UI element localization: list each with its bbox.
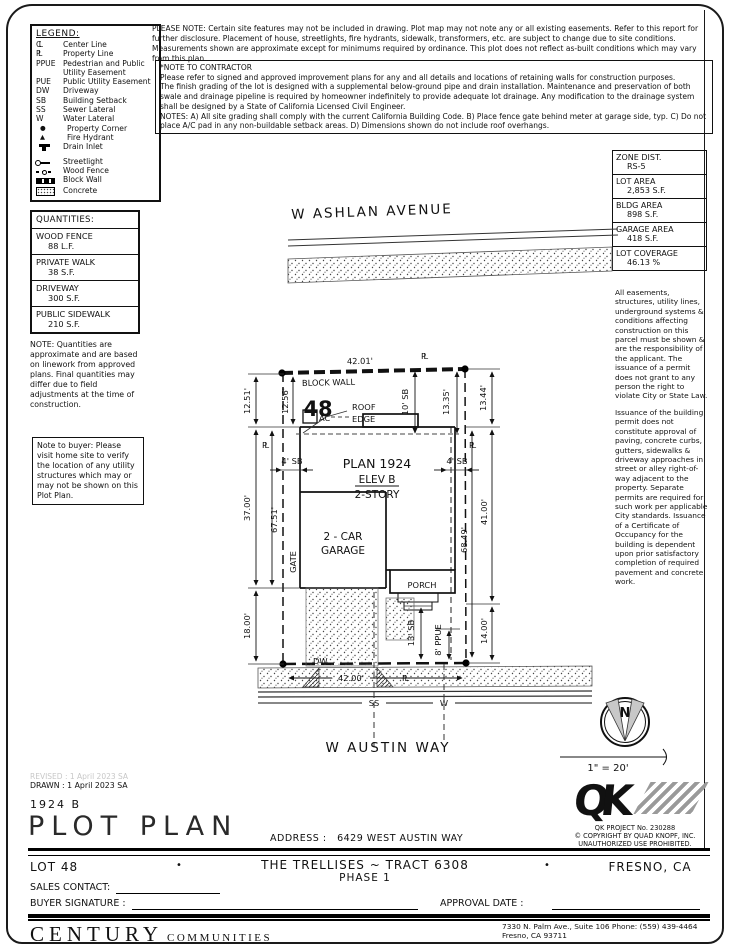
ac-label: AC xyxy=(319,413,331,423)
lot-label: LOT 48 xyxy=(30,860,78,874)
revised-line: REVISED : 1 April 2023 SA xyxy=(30,772,128,781)
elev-label: ELEV B xyxy=(359,474,396,486)
driveway-concrete xyxy=(306,588,414,666)
dim-left-outer: 12.51' xyxy=(242,388,252,414)
legend-item-drain-inlet: Drain Inlet xyxy=(36,142,155,156)
contractor-note-line: NOTES: A) All site grading shall comply … xyxy=(160,112,708,131)
dim-sb10: 10' SB xyxy=(400,388,410,415)
scale-bar: 1" = 20' xyxy=(560,749,667,774)
garage-label: GARAGE xyxy=(321,545,365,557)
block-wall-line xyxy=(282,369,465,373)
pl-label-left: PL xyxy=(262,440,270,450)
legend-item-pue: PUE Public Utility Easement xyxy=(36,77,155,86)
qk-logo-block: QK QK PROJECT No. 230288 © COPYRIGHT BY … xyxy=(556,780,714,849)
property-corner xyxy=(461,365,468,372)
water-lateral-label: W xyxy=(440,698,448,708)
gate-label: GATE xyxy=(288,551,298,573)
streetlight-icon xyxy=(36,162,50,164)
qk-copyright: © COPYRIGHT BY QUAD KNOPF, INC. xyxy=(556,832,714,840)
driveway-label: DW xyxy=(313,656,328,666)
legend-item-property-corner: ● Property Corner xyxy=(36,124,155,133)
note-to-contractor-box: *NOTE TO CONTRACTOR Please refer to sign… xyxy=(155,60,713,134)
plan-label: PLAN 1924 xyxy=(343,456,412,471)
approval-date-label: APPROVAL DATE : xyxy=(440,898,524,909)
dim-left-total: 67.51' xyxy=(269,507,279,533)
builder-logo: CENTURYCOMMUNITIES xyxy=(30,922,272,947)
quantity-row: DRIVEWAY 300 S.F. xyxy=(32,281,138,307)
legend-box: LEGEND: CL Center Line PL Property Line … xyxy=(30,24,161,202)
fire-hydrant-icon: ▲ xyxy=(36,133,67,142)
plot-drawing: W ASHLAN AVENUE xyxy=(238,195,716,787)
dim-sb4-left: 4' SB xyxy=(281,456,302,466)
contractor-note-line: Please refer to signed and approved impr… xyxy=(160,73,708,83)
dim-left-inner: 12.56' xyxy=(280,388,290,414)
approval-date-blank xyxy=(552,909,700,910)
legend-title: LEGEND: xyxy=(36,29,155,39)
buyer-signature-blank xyxy=(132,909,418,910)
qk-logo: QK xyxy=(556,780,714,824)
tract-name: THE TRELLISES ~ TRACT 6308 xyxy=(230,858,500,872)
property-corner xyxy=(278,369,285,376)
buyer-signature-label: BUYER SIGNATURE : xyxy=(30,898,126,909)
plot-plan-sheet: { "legend": { "title": "LEGEND:", "items… xyxy=(0,0,730,946)
legend-item-driveway: DW Driveway xyxy=(36,86,155,95)
page-title: PLOT PLAN xyxy=(28,811,238,842)
buyer-note-box: Note to buyer: Please visit home site to… xyxy=(32,437,144,505)
legend-item-sewer: SS Sewer Lateral xyxy=(36,105,155,114)
sales-contact-label: SALES CONTACT: xyxy=(30,882,110,893)
roof-edge-label: EDGE xyxy=(352,414,375,424)
centerline-symbol: CL xyxy=(36,40,63,49)
drawn-line: DRAWN : 1 April 2023 SA xyxy=(30,781,128,790)
garage-label: 2 - CAR xyxy=(324,531,363,543)
dim-right-low: 14.00' xyxy=(479,618,489,644)
dim-right-total: 68.49' xyxy=(459,527,469,553)
block-wall-label: BLOCK WALL xyxy=(302,377,356,388)
legend-item-fire-hydrant: ▲ Fire Hydrant xyxy=(36,133,155,142)
stat-row: ZONE DIST. RS-5 xyxy=(613,151,706,175)
please-note-text: PLEASE NOTE: Certain site features may n… xyxy=(152,24,712,64)
ashlan-avenue-street: W ASHLAN AVENUE xyxy=(288,201,618,283)
builder-name: CENTURY xyxy=(30,922,163,946)
dim-top: 42.01' xyxy=(347,356,373,367)
legend-item-block-wall: Block Wall xyxy=(36,175,155,186)
dim-sb4-right: 4' SB xyxy=(446,456,467,466)
legend-item-wood-fence: Wood Fence xyxy=(36,166,155,175)
address-label: ADDRESS : xyxy=(270,833,327,844)
dim-left-mid: 37.00' xyxy=(242,495,252,521)
address-line: ADDRESS : 6429 WEST AUSTIN WAY xyxy=(270,833,463,844)
concrete-icon xyxy=(36,187,55,196)
office-address: 7330 N. Palm Ave., Suite 106 Phone: (559… xyxy=(502,922,706,940)
dim-right-outer: 13.44' xyxy=(478,385,488,411)
legend-item-property-line: PL Property Line xyxy=(36,49,155,58)
quantities-box: QUANTITIES: WOOD FENCE 88 L.F. PRIVATE W… xyxy=(30,210,140,334)
plan-code: 1924 B xyxy=(30,798,81,811)
pl-label-top: PL xyxy=(421,351,429,361)
address-value: 6429 WEST AUSTIN WAY xyxy=(337,833,463,844)
dim-ppue: 8' PPUE xyxy=(433,624,443,656)
bullet-separator: • xyxy=(176,860,182,871)
builder-name-suffix: COMMUNITIES xyxy=(167,932,272,944)
story-label: 2-STORY xyxy=(355,489,400,501)
dim-right-mid: 41.00' xyxy=(479,499,489,525)
porch-label: PORCH xyxy=(408,580,437,590)
city-label: FRESNO, CA xyxy=(596,860,704,874)
property-line-symbol: PL xyxy=(36,49,63,58)
property-line-right xyxy=(465,369,466,663)
sidewalk-top xyxy=(288,247,612,283)
dim-right-inner: 13.35' xyxy=(441,389,451,415)
footer-divider xyxy=(28,914,710,921)
block-wall-icon xyxy=(36,178,55,184)
qk-logo-stripes xyxy=(633,782,708,814)
qk-project-number: QK PROJECT No. 230288 xyxy=(556,824,714,832)
property-corner-icon: ● xyxy=(36,124,67,133)
wood-fence-icon xyxy=(36,171,53,173)
sewer-lateral-label: SS xyxy=(369,698,380,708)
sales-contact-blank xyxy=(116,893,220,894)
quantity-row: WOOD FENCE 88 L.F. xyxy=(32,229,138,255)
legend-item-ppue: PPUE Pedestrian and Public Utility Easem… xyxy=(36,59,155,78)
street-name-top: W ASHLAN AVENUE xyxy=(291,201,453,223)
drain-inlet-icon xyxy=(39,144,50,154)
quantity-row: PRIVATE WALK 38 S.F. xyxy=(32,255,138,281)
legend-item-concrete: Concrete xyxy=(36,186,155,198)
dim-bottom: 42.00' xyxy=(338,673,364,683)
legend-item-setback: SB Building Setback xyxy=(36,96,155,105)
quantity-row: PUBLIC SIDEWALK 210 S.F. xyxy=(32,307,138,332)
bullet-separator: • xyxy=(544,860,550,871)
legend-item-streetlight: Streetlight xyxy=(36,157,155,166)
phase-label: PHASE 1 xyxy=(230,872,500,884)
north-label: N xyxy=(620,706,631,721)
street-name-bottom: W AUSTIN WAY xyxy=(326,740,451,756)
quantities-title: QUANTITIES: xyxy=(32,212,138,229)
pl-label-right: PL xyxy=(469,440,477,450)
dim-left-low: 18.00' xyxy=(242,613,252,639)
quantities-note: NOTE: Quantities are approximate and are… xyxy=(30,340,144,410)
roof-edge-label: ROOF xyxy=(352,402,376,412)
legend-item-water: W Water Lateral xyxy=(36,114,155,123)
title-divider xyxy=(28,848,710,856)
contractor-note-title: *NOTE TO CONTRACTOR xyxy=(160,63,708,73)
legend-item-centerline: CL Center Line xyxy=(36,40,155,49)
contractor-note-line: The finish grading of the lot is designe… xyxy=(160,82,708,111)
dim-sb13: 13' SB xyxy=(406,619,416,646)
scale-label: 1" = 20' xyxy=(587,763,628,774)
north-arrow: N xyxy=(601,698,649,746)
